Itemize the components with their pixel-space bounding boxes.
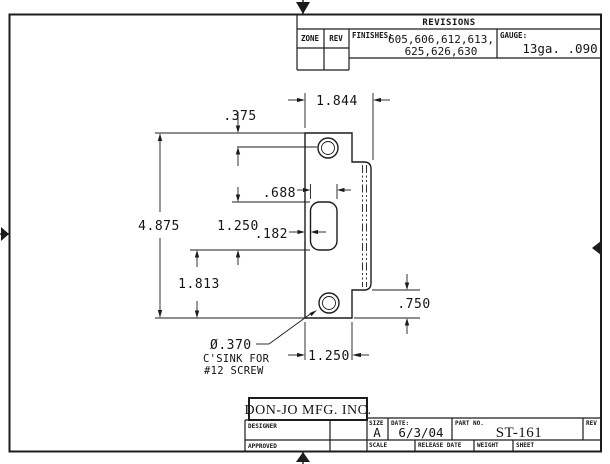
bottom-marker-icon (296, 452, 310, 462)
company-name: DON-JO MFG. INC. (244, 403, 371, 418)
part-no-value: ST-161 (496, 425, 543, 441)
gauge-value: 13ga. .090 (522, 41, 597, 56)
zone-label: ZONE (301, 34, 320, 43)
revisions-table: REVISIONS ZONE REV FINISHES: 605,606,612… (301, 18, 598, 58)
date-value: 6/3/04 (398, 425, 443, 440)
title-block: DON-JO MFG. INC. DESIGNER APPROVED SIZE … (244, 403, 597, 450)
finishes-line2: 625,626,630 (405, 45, 478, 58)
dim-text-375: .375 (223, 109, 256, 124)
designer-label: DESIGNER (248, 423, 277, 430)
approved-label: APPROVED (248, 443, 277, 450)
finishes-label: FINISHES: (352, 31, 393, 40)
dim-overall-width: 1.844 (288, 94, 390, 109)
left-marker-icon (1, 227, 9, 241)
release-date-label: RELEASE DATE (418, 442, 462, 449)
gauge-label: GAUGE: (500, 31, 527, 40)
dim-text-1250-mid: 1.250 (217, 219, 259, 234)
dim-text-688: .688 (263, 186, 296, 201)
drawing-canvas: .375 1.844 .688 4.875 1.250 .1 (0, 0, 610, 464)
top-screw-hole (318, 138, 338, 158)
dim-bottom-section: 1.813 (178, 250, 220, 318)
sheet-label: SHEET (516, 442, 534, 449)
rev-label: REV (329, 34, 343, 43)
strike-plate-outline (305, 133, 371, 318)
dim-text-750: .750 (397, 297, 430, 312)
note-hole-diameter: Ø.370 (210, 338, 252, 353)
top-marker-icon (296, 2, 310, 14)
scale-label: SCALE (369, 442, 387, 449)
dim-text-1813: 1.813 (178, 277, 220, 292)
revisions-title: REVISIONS (422, 18, 475, 28)
part-no-label: PART NO. (455, 420, 484, 427)
titleblock-rev-label: REV (586, 420, 597, 427)
right-marker-icon (592, 241, 601, 255)
dim-opening-width: .688 (263, 186, 351, 201)
bottom-screw-hole (319, 293, 339, 313)
dim-lip-tab-height: .750 (397, 274, 430, 334)
note-csink-1: C'SINK FOR (203, 353, 270, 365)
dim-flat-width: 1.250 (288, 349, 369, 364)
latch-opening (311, 202, 338, 250)
dim-text-182: .182 (255, 227, 288, 242)
dim-overall-height: 4.875 (138, 134, 180, 318)
countersink-note: Ø.370 C'SINK FOR #12 SCREW (203, 310, 317, 377)
dim-opening-offset: .182 (255, 227, 326, 242)
note-csink-2: #12 SCREW (204, 365, 264, 377)
dim-opening-height: 1.250 (217, 187, 259, 265)
dim-top-hole-offset: .375 (223, 109, 256, 166)
dim-text-1844: 1.844 (316, 94, 358, 109)
dim-text-4875: 4.875 (138, 219, 180, 234)
weight-label: WEIGHT (477, 442, 499, 449)
dim-text-1250-bot: 1.250 (308, 349, 350, 364)
drawing-sheet: .375 1.844 .688 4.875 1.250 .1 (0, 0, 610, 464)
size-value: A (373, 425, 381, 440)
